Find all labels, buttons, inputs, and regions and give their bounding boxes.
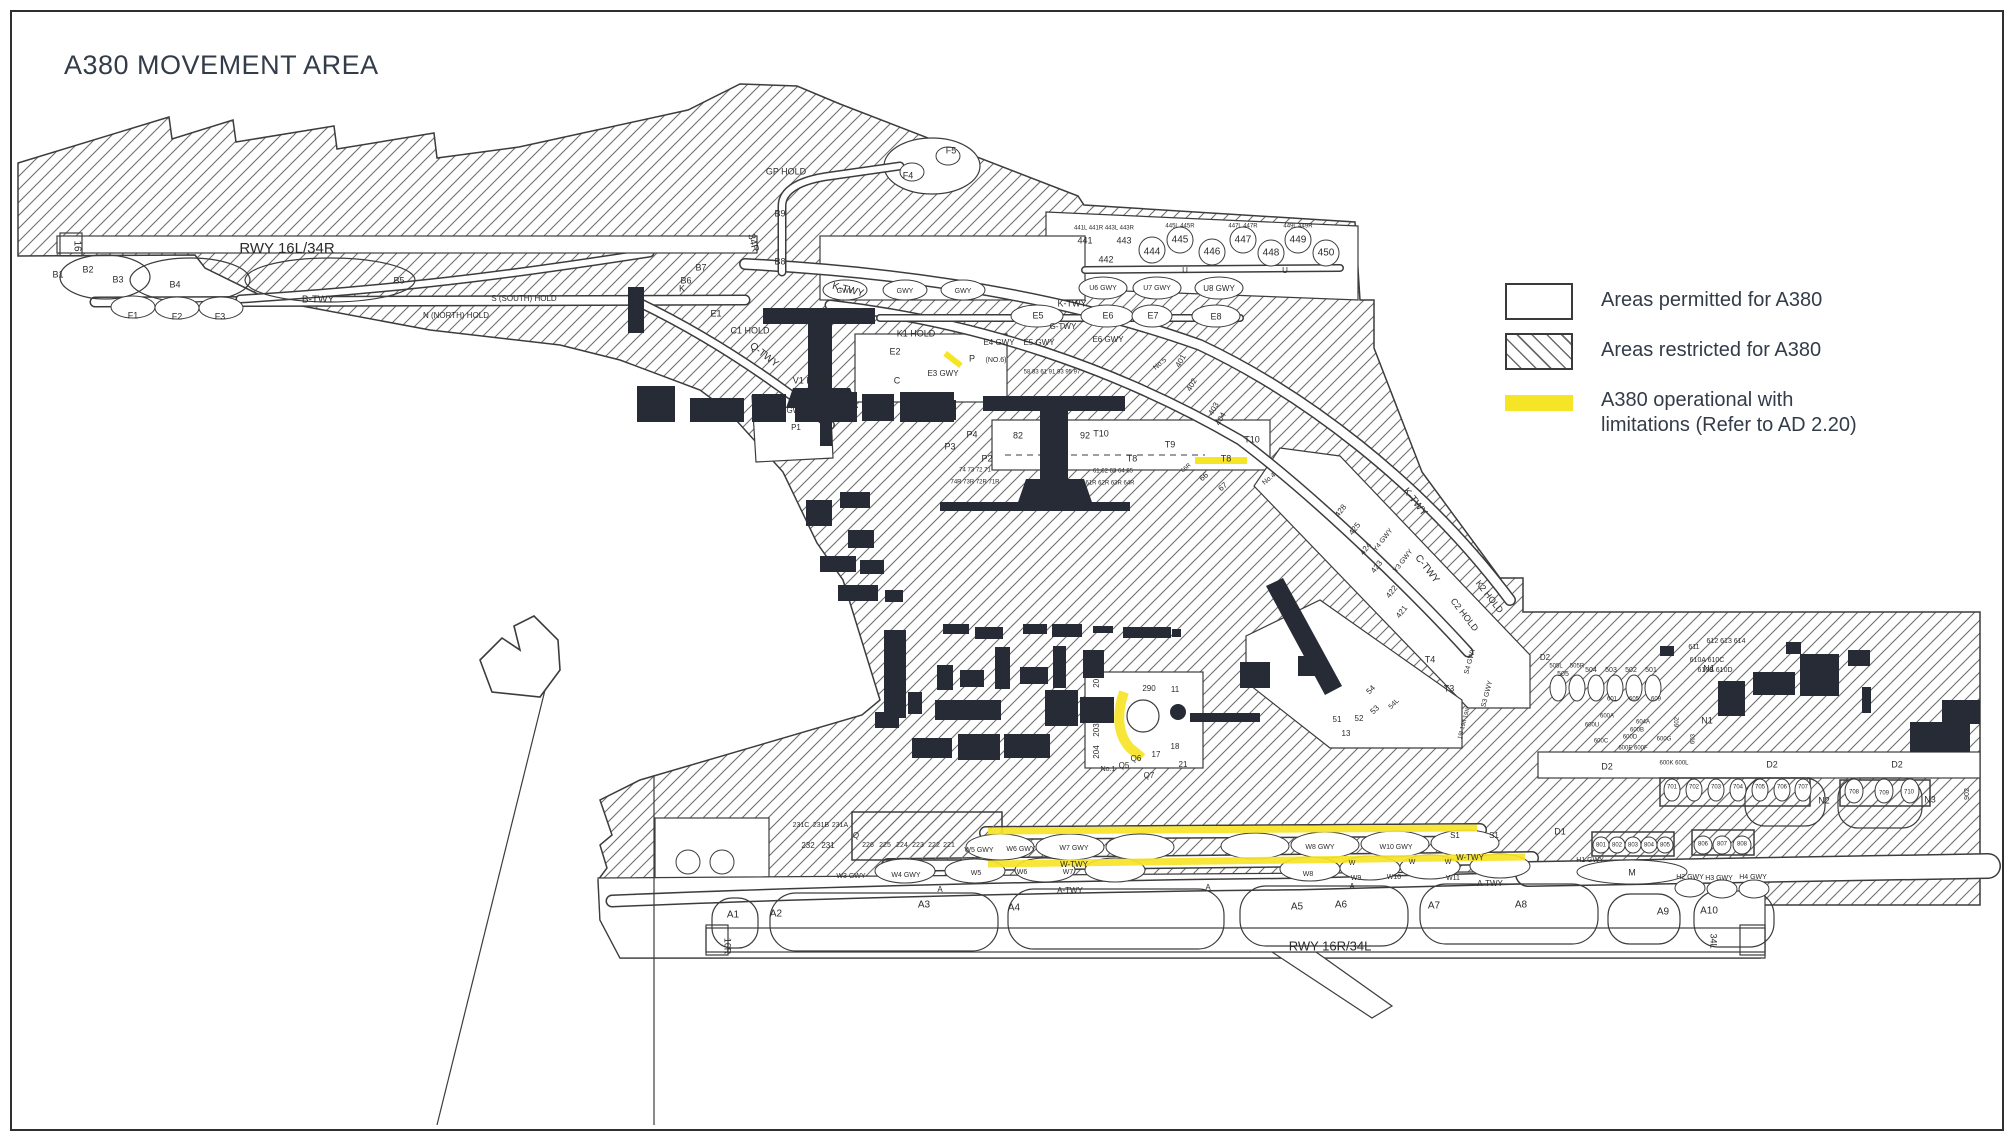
map-label: A-TWY: [1057, 886, 1083, 895]
map-label: 232: [801, 841, 815, 850]
map-label: 600A: [1600, 714, 1614, 720]
runway-16l-34r: [57, 236, 757, 253]
map-label: W8: [1303, 871, 1314, 878]
map-label: W-TWY: [1456, 853, 1485, 862]
map-label: K1 HOLD: [897, 328, 936, 338]
legend-item-permitted: Areas permitted for A380: [1505, 283, 1925, 320]
map-label: 203: [1092, 723, 1101, 737]
map-label: 502: [1625, 667, 1637, 674]
map-label: W: [1349, 860, 1356, 867]
map-label: A10: [1700, 906, 1718, 917]
map-label: 231B: [813, 822, 830, 829]
map-label: 704: [1733, 785, 1744, 791]
map-label: No.1: [1101, 766, 1116, 773]
map-label: GWY: [897, 288, 914, 295]
map-label: G-TWY: [1050, 322, 1077, 331]
map-label: 707: [1798, 785, 1809, 791]
map-label: A8: [1515, 900, 1528, 911]
map-label: N1: [1701, 715, 1713, 725]
map-label: E1: [710, 308, 721, 318]
map-label: B5: [393, 275, 404, 285]
map-label: B4: [169, 279, 180, 289]
map-label: 13: [1342, 729, 1351, 738]
map-label: T9: [1165, 439, 1176, 449]
restricted-swatch: [1505, 333, 1573, 370]
map-label: E6: [1102, 310, 1113, 320]
map-label: 58 83 61 91 93 95 97: [1024, 370, 1081, 376]
map-label: T3: [1444, 683, 1455, 693]
map-label: 231A: [832, 822, 849, 829]
map-label: H3 GWY: [1705, 875, 1733, 882]
map-label: S1: [1450, 831, 1460, 840]
map-label: 505R: [1570, 664, 1585, 670]
legend-label: A380 operational with limitations (Refer…: [1601, 383, 1857, 438]
map-label: 446: [1204, 247, 1221, 258]
map-label: W: [1445, 859, 1452, 866]
map-label: B-TWY: [302, 295, 335, 306]
map-label: E7: [1147, 310, 1158, 320]
map-label: W: [1409, 859, 1416, 866]
map-label: 503: [1605, 667, 1617, 674]
map-label: A5: [1291, 902, 1304, 913]
map-label: 447: [1235, 235, 1252, 246]
map-label: W11: [1446, 875, 1460, 882]
map-label: U7 GWY: [1143, 285, 1171, 292]
map-label: W8 GWY: [1305, 844, 1334, 851]
map-label: T8: [1127, 453, 1138, 463]
map-label: F5: [946, 145, 957, 155]
map-label: B7: [695, 262, 706, 272]
map-label: 802: [1612, 843, 1623, 849]
map-label: 505: [1557, 671, 1569, 678]
map-label: 706: [1777, 785, 1788, 791]
map-label: 290: [1142, 684, 1156, 693]
map-label: W5: [971, 870, 982, 877]
map-label: 82: [1013, 430, 1023, 440]
map-label: 18: [1171, 742, 1180, 751]
map-label: Q7: [1144, 771, 1155, 780]
map-label: 445: [1172, 235, 1189, 246]
map-label: W4 GWY: [891, 872, 920, 879]
map-label: D1: [1554, 826, 1566, 836]
map-label: 600U: [1585, 723, 1599, 729]
map-label: 600C: [1594, 739, 1609, 745]
map-label: 51: [1333, 715, 1342, 724]
map-label: F4: [903, 170, 914, 180]
map-label: 806: [1698, 842, 1709, 848]
a380-movement-area-chart: RWY 16L/34R1634RB1B2B3B4B5F1F2F3B-TWYN (…: [0, 0, 2016, 1143]
map-label: Q: [853, 831, 859, 840]
map-label: 611: [1688, 644, 1699, 651]
map-label: W10 GWY: [1379, 844, 1412, 851]
map-label: W7: [1063, 869, 1074, 876]
map-label: F2: [172, 311, 183, 321]
map-label: Q5: [1119, 761, 1130, 770]
map-label: B2: [82, 264, 93, 274]
map-label: U6 GWY: [1089, 285, 1117, 292]
map-label: H1 GWY: [1576, 857, 1604, 864]
map-label: E8: [1210, 311, 1221, 321]
map-label: 610B 610D: [1697, 667, 1732, 674]
map-label: A1: [727, 910, 740, 921]
map-label: A6: [1335, 900, 1348, 911]
map-label: C: [894, 375, 901, 385]
legend-label-line1: A380 operational with: [1601, 388, 1857, 413]
map-label: F1: [128, 310, 139, 320]
map-label: W6: [1017, 869, 1028, 876]
map-label: S1: [1489, 831, 1499, 840]
map-label: 705: [1755, 785, 1766, 791]
map-label: 224: [896, 842, 908, 849]
map-label: 600K 600L: [1659, 761, 1689, 767]
map-label: 610A 610C: [1690, 657, 1725, 664]
map-label: B3: [112, 274, 123, 284]
map-label: 703: [1711, 785, 1722, 791]
map-label: 501: [1645, 667, 1657, 674]
map-label: 445L 445R: [1165, 224, 1195, 230]
map-label: 804: [1644, 843, 1655, 849]
map-label: 222: [928, 842, 940, 849]
map-label: 223: [912, 842, 924, 849]
map-label: T10: [1093, 428, 1109, 438]
map-label: 701: [1667, 785, 1678, 791]
map-label: 709: [1879, 791, 1890, 797]
map-label: 600E 600F: [1618, 746, 1648, 752]
page-title: A380 MOVEMENT AREA: [64, 50, 379, 81]
map-label: 17: [1152, 750, 1161, 759]
map-label: 11: [1171, 685, 1180, 694]
map-label: 231: [821, 841, 835, 850]
map-label: 231C: [793, 822, 810, 829]
map-label: S (SOUTH) HOLD: [491, 294, 557, 303]
map-label: A9: [1657, 907, 1670, 918]
map-label: U8 GWY: [1203, 284, 1235, 293]
map-label: A4: [1008, 903, 1021, 914]
map-label: A-TWY: [1477, 879, 1503, 888]
map-label: 803: [1628, 843, 1639, 849]
map-label: F3: [215, 311, 226, 321]
map-label: GP HOLD: [766, 166, 807, 176]
map-label: U: [1282, 266, 1288, 275]
map-label: A2: [770, 909, 783, 920]
map-label: GWY: [955, 288, 972, 295]
map-label: 902: [1964, 788, 1971, 800]
map-label: 34L: [1709, 933, 1719, 948]
map-label: Q6: [1131, 754, 1142, 763]
map-label: N3: [1924, 794, 1936, 804]
map-label: A: [937, 885, 943, 894]
map-label: 21: [1179, 760, 1188, 769]
map-label: 504: [1585, 667, 1597, 674]
map-label: E4 GWY: [983, 338, 1015, 347]
map-label: U: [1182, 266, 1188, 275]
map-label: 74 73 72 71: [959, 468, 991, 474]
map-label: E2: [889, 346, 900, 356]
map-label: B1: [52, 269, 63, 279]
map-label: 604A: [1636, 720, 1650, 726]
map-label: 52: [1355, 714, 1364, 723]
map-label: D2: [1601, 761, 1613, 771]
map-label: 16R: [723, 938, 733, 955]
map-label: 202: [1092, 701, 1101, 715]
map-label: A: [1349, 882, 1355, 891]
map-label: 447L 447R: [1228, 224, 1258, 230]
map-label: 805: [1660, 843, 1671, 849]
map-label: E5: [1032, 310, 1043, 320]
map-label: 92: [1080, 430, 1090, 440]
map-label: 600G: [1657, 737, 1672, 743]
map-label: 505L: [1549, 664, 1563, 670]
legend: Areas permitted for A380 Areas restricte…: [1505, 283, 1925, 451]
map-label: W6 GWY: [1006, 846, 1035, 853]
map-label: 801: [1596, 843, 1607, 849]
map-label: 601: [1607, 697, 1618, 703]
map-label: D2: [1766, 759, 1778, 769]
legend-item-restricted: Areas restricted for A380: [1505, 333, 1925, 370]
map-label: K-TWY: [1058, 298, 1087, 308]
map-label: 221: [943, 842, 955, 849]
map-label: 441: [1077, 235, 1092, 245]
map-label: 201: [1092, 674, 1101, 688]
map-label: 448: [1263, 248, 1280, 259]
map-label: 225: [879, 842, 891, 849]
map-label: P: [969, 353, 975, 363]
map-label: D2: [1540, 653, 1551, 662]
map-label: 710: [1904, 790, 1915, 796]
map-label: 603: [1691, 733, 1697, 744]
map-label: 74R 73R 72R 71R: [950, 480, 1000, 486]
map-label: 204: [1092, 745, 1101, 759]
map-label: H4 GWY: [1739, 874, 1767, 881]
map-label: E3 GWY: [927, 369, 959, 378]
map-label: A: [1205, 883, 1211, 892]
map-label: 442: [1098, 254, 1113, 264]
map-label: T4: [1425, 654, 1436, 664]
limited-swatch: [1505, 395, 1573, 411]
map-label: 602: [1675, 716, 1681, 727]
map-label: B8: [774, 256, 785, 266]
map-label: P1 GWY: [774, 406, 806, 415]
map-label: W10: [1387, 874, 1402, 881]
legend-label-line2: limitations (Refer to AD 2.20): [1601, 413, 1857, 438]
map-label: RWY 16L/34R: [239, 240, 334, 257]
map-label: D2: [1891, 759, 1903, 769]
map-label: T10: [1244, 434, 1260, 444]
map-label: T8: [1221, 453, 1232, 463]
map-label: A3: [918, 900, 931, 911]
legend-label: Areas permitted for A380: [1601, 283, 1822, 313]
map-label: 600D: [1623, 735, 1638, 741]
map-label: M: [1628, 867, 1636, 877]
map-label: 444: [1144, 247, 1161, 258]
map-label: 609: [1651, 697, 1662, 703]
map-label: C1 HOLD: [730, 325, 770, 335]
map-label: 708: [1849, 790, 1860, 796]
map-label: 605: [1629, 697, 1640, 703]
map-label: P4: [966, 429, 977, 439]
map-label: P2: [981, 453, 992, 463]
map-label: 612 613 614: [1707, 638, 1746, 645]
airport-map: RWY 16L/34R1634RB1B2B3B4B5F1F2F3B-TWYN (…: [0, 0, 2016, 1143]
map-label: 449: [1290, 235, 1307, 246]
map-label: (NO.6): [986, 357, 1007, 364]
map-label: W5 GWY: [964, 847, 993, 854]
map-label: 449L 449R: [1283, 224, 1313, 230]
map-label: W3 GWY: [836, 873, 865, 880]
permitted-swatch: [1505, 283, 1573, 320]
map-label: 702: [1689, 785, 1700, 791]
map-label: 16: [71, 240, 82, 252]
map-label: K: [679, 283, 685, 293]
runway-16r-34l: [706, 928, 1765, 952]
map-label: H2 GWY: [1676, 874, 1704, 881]
map-label: E5 GWY: [1023, 338, 1055, 347]
map-label: 61 62 63 64 65: [1093, 469, 1134, 475]
legend-item-limited: A380 operational with limitations (Refer…: [1505, 383, 1925, 438]
map-label: E6 GWY: [1092, 335, 1124, 344]
legend-label: Areas restricted for A380: [1601, 333, 1821, 363]
map-label: 600B: [1630, 728, 1644, 734]
map-label: B9: [774, 208, 785, 218]
map-label: RWY 16R/34L: [1289, 938, 1372, 953]
map-label: 807: [1717, 842, 1728, 848]
map-label: N (NORTH) HOLD: [423, 311, 489, 320]
map-label: 61R 62R 63R 64R: [1085, 481, 1135, 487]
map-label: W9: [1351, 875, 1362, 882]
map-label: V1 HOLD: [793, 375, 832, 385]
map-label: N2: [1818, 795, 1830, 805]
map-label: 441L 441R 443L 443R: [1074, 226, 1135, 232]
map-label: 443: [1116, 235, 1131, 245]
map-label: P1: [791, 423, 801, 432]
map-label: 808: [1737, 842, 1748, 848]
map-label: A7: [1428, 901, 1441, 912]
map-label: P3: [944, 441, 955, 451]
map-label: W7 GWY: [1059, 845, 1088, 852]
map-label: 450: [1318, 248, 1335, 259]
map-label: 226: [862, 842, 874, 849]
map-label: W-TWY: [1060, 860, 1089, 869]
map-label: GWY: [837, 288, 854, 295]
